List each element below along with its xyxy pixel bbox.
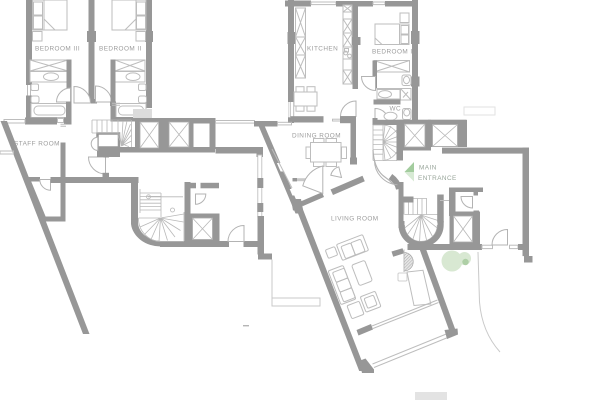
svg-text:BEDROOM I: BEDROOM I: [372, 49, 413, 56]
svg-text:BEDROOM II: BEDROOM II: [99, 46, 142, 53]
svg-text:BEDROOM III: BEDROOM III: [35, 46, 80, 53]
svg-text:STAFF ROOM: STAFF ROOM: [14, 141, 60, 148]
svg-text:MAIN: MAIN: [419, 165, 437, 172]
svg-text:WC: WC: [390, 106, 402, 113]
svg-text:KITCHEN: KITCHEN: [307, 46, 338, 53]
svg-text:LIVING ROOM: LIVING ROOM: [331, 216, 379, 223]
svg-text:ENTRANCE: ENTRANCE: [418, 175, 457, 182]
